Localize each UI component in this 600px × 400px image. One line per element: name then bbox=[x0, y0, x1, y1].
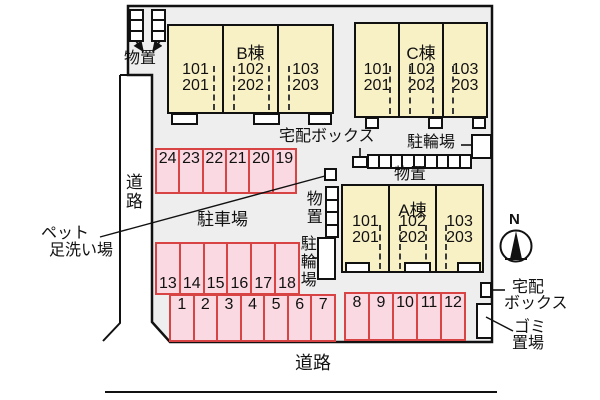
delivery-box bbox=[480, 282, 492, 298]
parking-space: 5 bbox=[263, 296, 287, 340]
parking-space: 7 bbox=[310, 296, 334, 340]
building-a: 101201 A棟 102202 103203 bbox=[341, 184, 484, 273]
road-left-edge bbox=[103, 75, 120, 341]
entrance-porch bbox=[457, 262, 481, 273]
parking-space: 12 bbox=[440, 294, 464, 339]
unit-numbers: 103203 bbox=[437, 214, 482, 246]
north-arrow-icon bbox=[501, 231, 532, 262]
parking-space: 1 bbox=[171, 296, 193, 340]
garbage-label-line2: 置場 bbox=[512, 336, 544, 353]
pet-wash-label-line1: ペット bbox=[41, 226, 89, 243]
parking-row-back: 24 23 22 21 20 19 bbox=[155, 148, 297, 194]
partition-dash bbox=[233, 66, 235, 110]
delivery-box-label-right-line2: ボックス bbox=[504, 296, 568, 313]
unit-numbers: 102202 bbox=[400, 62, 442, 94]
parking-space: 17 bbox=[250, 244, 274, 293]
partition-dash bbox=[452, 66, 454, 114]
partition-dash bbox=[409, 66, 411, 114]
parking-space: 20 bbox=[248, 150, 271, 192]
road-label-left: 道路 bbox=[123, 173, 141, 211]
partition-dash bbox=[399, 225, 401, 269]
unit-cell: 103203 bbox=[277, 26, 332, 112]
bicycle-parking-box bbox=[317, 237, 336, 280]
building-c: 101201 C棟 102202 103203 bbox=[354, 22, 488, 118]
unit-cell: 103203 bbox=[442, 24, 486, 116]
parking-space: 16 bbox=[226, 244, 250, 293]
entrance-porch bbox=[428, 117, 443, 129]
unit-numbers: 103203 bbox=[444, 62, 486, 94]
bicycle-parking-label-top: 駐輪場 bbox=[407, 135, 455, 152]
parking-row-front-left: 1 2 3 4 5 6 7 bbox=[169, 294, 336, 342]
entrance-porch bbox=[472, 117, 486, 129]
building-b: 101201 B棟 102202 103203 bbox=[167, 24, 334, 114]
parking-space: 11 bbox=[416, 294, 440, 339]
unit-cell: 101201 bbox=[343, 186, 388, 271]
parking-space: 6 bbox=[287, 296, 311, 340]
partition-dash bbox=[268, 66, 270, 110]
parking-area-label: 駐車場 bbox=[197, 211, 248, 229]
bicycle-parking-box bbox=[471, 134, 492, 159]
storage-shed-box bbox=[129, 9, 144, 42]
parking-space: 2 bbox=[193, 296, 217, 340]
compass-north-label: N bbox=[509, 212, 520, 228]
storage-label-mid: 物置 bbox=[303, 190, 320, 226]
unit-numbers: 101201 bbox=[356, 62, 398, 94]
entrance-porch bbox=[308, 113, 332, 125]
parking-space: 8 bbox=[346, 294, 368, 339]
delivery-box-label-top: 宅配ボックス bbox=[279, 129, 375, 146]
delivery-box bbox=[352, 156, 368, 168]
partition-dash bbox=[288, 66, 290, 110]
storage-shed-box bbox=[151, 9, 166, 42]
unit-numbers: 102202 bbox=[390, 214, 435, 246]
parking-space: 14 bbox=[179, 244, 203, 293]
storage-shed-column bbox=[325, 186, 339, 238]
storage-label-top: 物置 bbox=[124, 51, 156, 68]
parking-space: 18 bbox=[274, 244, 298, 293]
pet-wash-station-box bbox=[324, 168, 337, 181]
unit-cell: C棟 102202 bbox=[398, 24, 442, 116]
unit-numbers: 103203 bbox=[279, 62, 332, 94]
bicycle-parking-label-mid: 駐輪場 bbox=[297, 235, 314, 289]
parking-row-mid: 13 14 15 16 17 18 bbox=[155, 242, 300, 295]
road-label-bottom: 道路 bbox=[295, 354, 331, 373]
parking-space: 19 bbox=[272, 150, 295, 192]
parking-space: 4 bbox=[240, 296, 264, 340]
garbage-station-box bbox=[476, 303, 493, 339]
parking-row-front-right: 8 9 10 11 12 bbox=[344, 292, 466, 341]
pet-wash-label-line2: 足洗い場 bbox=[49, 243, 113, 260]
partition-dash bbox=[445, 225, 447, 269]
entrance-porch bbox=[404, 262, 431, 273]
parking-space: 10 bbox=[392, 294, 416, 339]
parking-space: 15 bbox=[203, 244, 227, 293]
site-plan: 101201 B棟 102202 103203 101201 bbox=[0, 0, 600, 400]
entrance-porch bbox=[345, 262, 370, 273]
parking-space: 21 bbox=[225, 150, 248, 192]
partition-dash bbox=[432, 66, 434, 114]
partition-dash bbox=[379, 225, 381, 269]
parking-space: 13 bbox=[157, 244, 179, 293]
parking-space: 24 bbox=[157, 150, 178, 192]
unit-cell: A棟 102202 bbox=[388, 186, 435, 271]
parking-space: 3 bbox=[216, 296, 240, 340]
partition-dash bbox=[389, 66, 391, 114]
partition-dash bbox=[213, 66, 215, 110]
unit-cell: 101201 bbox=[356, 24, 398, 116]
unit-numbers: 101201 bbox=[343, 214, 388, 246]
parking-space: 9 bbox=[368, 294, 392, 339]
entrance-porch bbox=[253, 113, 280, 125]
parking-space: 22 bbox=[202, 150, 225, 192]
storage-label-row: 物置 bbox=[394, 167, 426, 184]
unit-cell: 103203 bbox=[435, 186, 482, 271]
parking-space: 23 bbox=[178, 150, 201, 192]
entrance-porch bbox=[171, 113, 198, 125]
